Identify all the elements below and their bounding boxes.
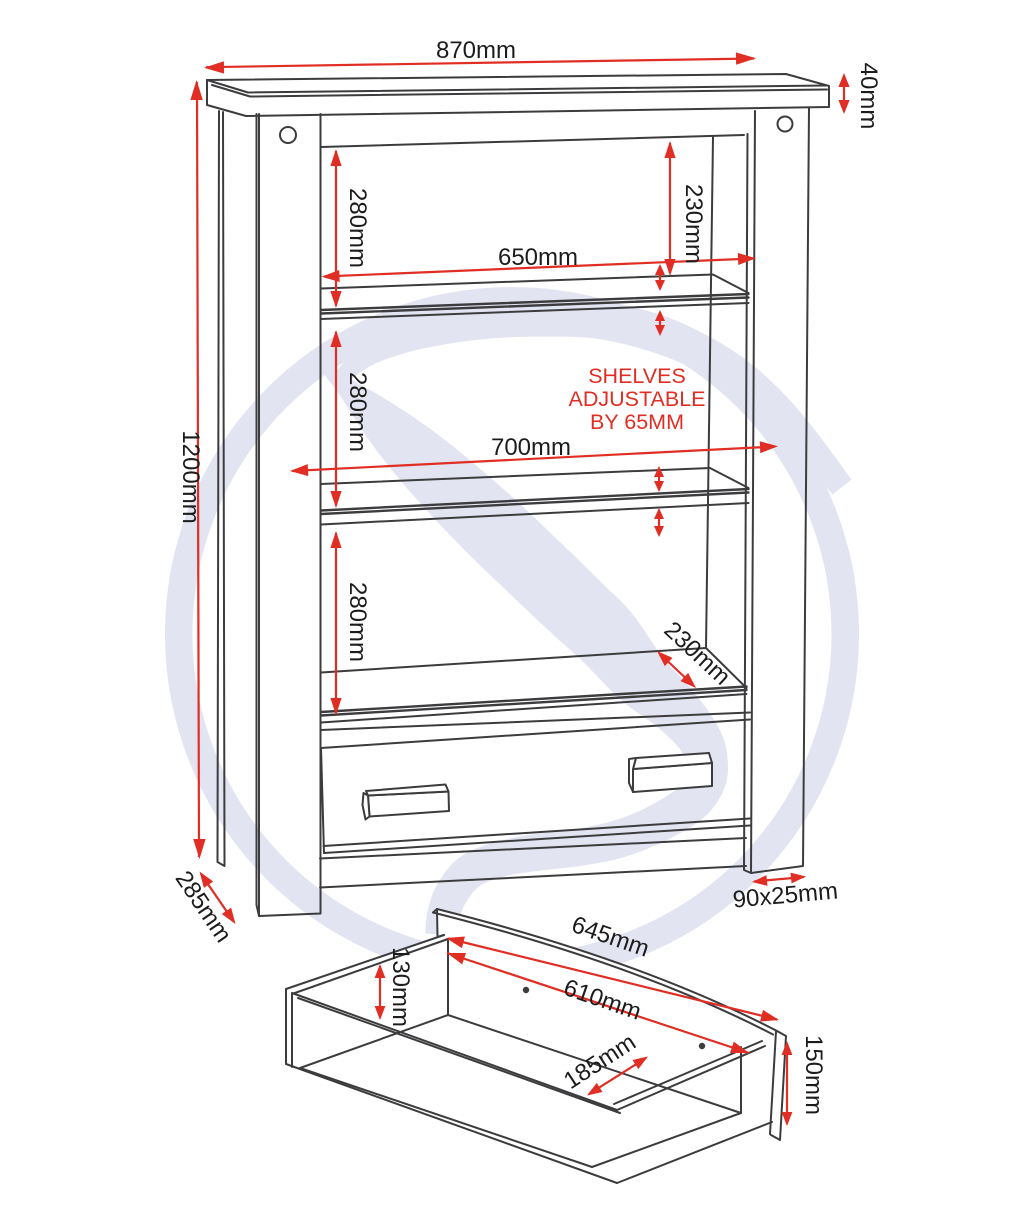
- svg-text:1200mm: 1200mm: [177, 430, 204, 523]
- svg-text:870mm: 870mm: [436, 37, 516, 64]
- svg-text:280mm: 280mm: [344, 372, 371, 452]
- svg-text:SHELVES: SHELVES: [588, 364, 686, 388]
- svg-text:BY 65MM: BY 65MM: [590, 410, 684, 434]
- svg-text:230mm: 230mm: [680, 184, 707, 264]
- svg-text:40mm: 40mm: [855, 63, 882, 130]
- svg-text:280mm: 280mm: [344, 188, 371, 268]
- svg-text:700mm: 700mm: [491, 434, 571, 461]
- svg-text:130mm: 130mm: [387, 947, 414, 1027]
- svg-text:280mm: 280mm: [344, 582, 371, 662]
- svg-text:650mm: 650mm: [498, 244, 578, 271]
- svg-text:150mm: 150mm: [800, 1035, 827, 1115]
- svg-text:ADJUSTABLE: ADJUSTABLE: [569, 387, 706, 411]
